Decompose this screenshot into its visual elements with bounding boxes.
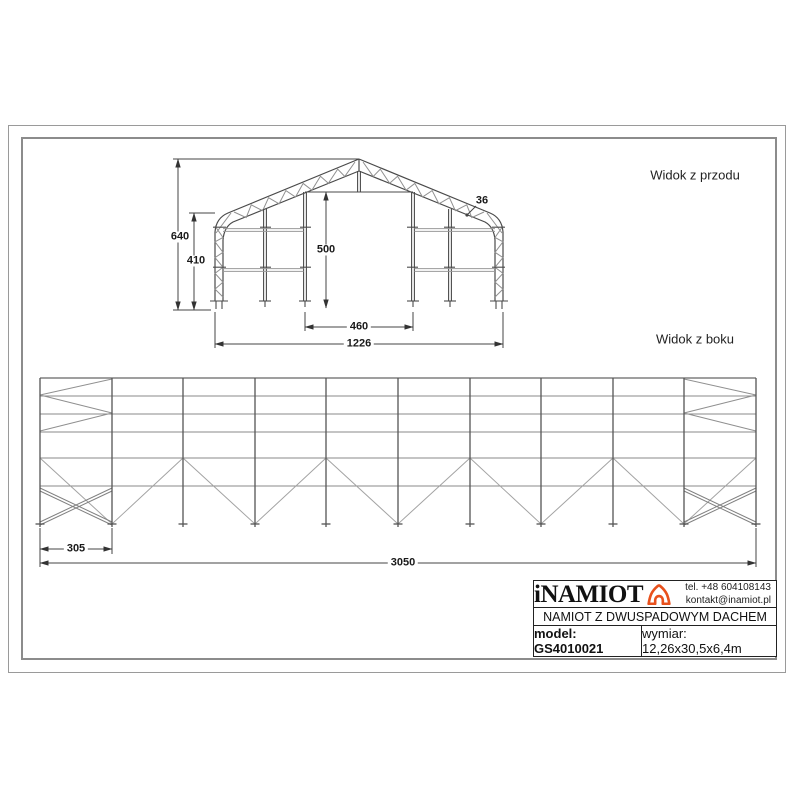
front-view-title: Widok z przodu bbox=[650, 168, 740, 183]
brand-logo: iNAMIOT bbox=[534, 582, 671, 607]
dim-total-width: 1226 bbox=[344, 339, 374, 350]
drawing-sheet: Widok z przodu Widok z boku 640 410 500 … bbox=[0, 0, 800, 800]
tent-dimensions: wymiar: 12,26x30,5x6,4m bbox=[642, 626, 776, 656]
dim-door-width: 460 bbox=[347, 322, 371, 333]
truss-chords bbox=[215, 159, 503, 301]
title-block: iNAMIOT tel. +48 604108143 kontakt@inami… bbox=[533, 580, 777, 657]
dim-wall-height: 410 bbox=[184, 256, 208, 267]
truss-webbing bbox=[215, 162, 503, 297]
phone-number: tel. +48 604108143 bbox=[671, 581, 771, 594]
front-columns bbox=[210, 171, 508, 309]
title-block-spec-row: model: GS4010021 wymiar: 12,26x30,5x6,4m bbox=[534, 626, 776, 656]
side-view-drawing bbox=[36, 378, 761, 567]
dim-truss-depth: 36 bbox=[473, 196, 491, 207]
side-columns bbox=[36, 378, 761, 527]
email-address: kontakt@inamiot.pl bbox=[671, 594, 771, 607]
dim-bay-spacing: 305 bbox=[64, 544, 88, 555]
model-number: model: GS4010021 bbox=[534, 626, 642, 656]
dim-door-height: 500 bbox=[314, 245, 338, 256]
tent-house-icon bbox=[647, 583, 671, 605]
front-view-drawing bbox=[173, 159, 508, 348]
side-view-title: Widok z boku bbox=[656, 332, 734, 347]
dim-total-height: 640 bbox=[168, 232, 192, 243]
dim-total-length: 3050 bbox=[388, 558, 418, 569]
title-block-header-row: iNAMIOT tel. +48 604108143 kontakt@inami… bbox=[534, 581, 776, 608]
product-name: NAMIOT Z DWUSPADOWYM DACHEM bbox=[534, 608, 776, 626]
contact-info: tel. +48 604108143 kontakt@inamiot.pl bbox=[671, 581, 776, 607]
brand-name: iNAMIOT bbox=[534, 582, 643, 607]
cad-drawing bbox=[0, 0, 800, 800]
